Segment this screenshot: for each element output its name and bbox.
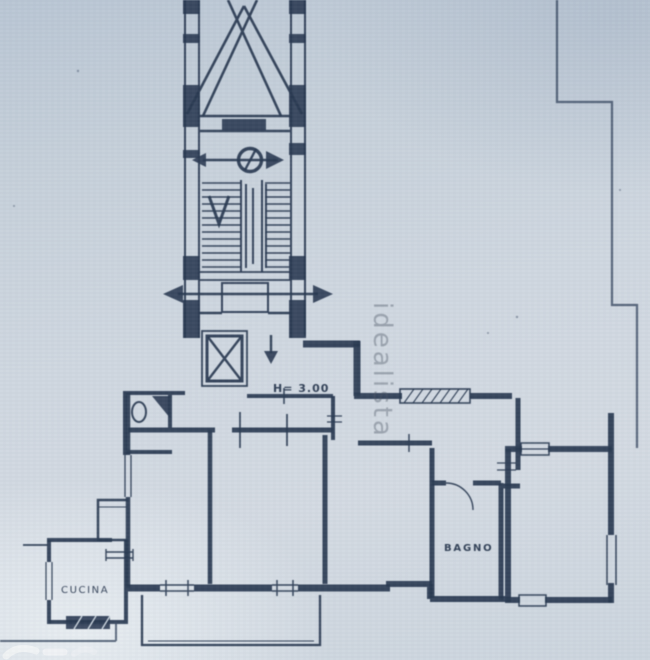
bathroom-label: BAGNO xyxy=(444,543,493,554)
window-hatch xyxy=(400,389,470,403)
balcony xyxy=(142,595,320,645)
watermark-text: idealista xyxy=(367,302,397,439)
roof-brace-lines xyxy=(187,0,302,116)
elevator-x-brace xyxy=(208,337,241,380)
kitchen-label: CUCINA xyxy=(61,585,109,596)
north-circle-arrow xyxy=(192,149,284,172)
wc-room xyxy=(123,393,185,455)
toilet-fixture xyxy=(132,402,146,422)
property-outline xyxy=(557,0,637,448)
apartment-walls xyxy=(98,341,520,600)
stair-down-arrow xyxy=(209,196,229,224)
staircase xyxy=(200,180,290,280)
entry-down-arrow xyxy=(264,335,278,364)
floor-plan-drawing: idealista H= 3.00 CUCINA BAGNO xyxy=(0,0,650,660)
elevator xyxy=(202,331,247,386)
right-bedroom xyxy=(505,413,616,606)
height-note: H= 3.00 xyxy=(273,382,329,395)
floor-plan-photo: idealista H= 3.00 CUCINA BAGNO xyxy=(0,0,650,660)
bathroom xyxy=(432,448,501,598)
kitchen-window-hatch xyxy=(66,616,110,629)
